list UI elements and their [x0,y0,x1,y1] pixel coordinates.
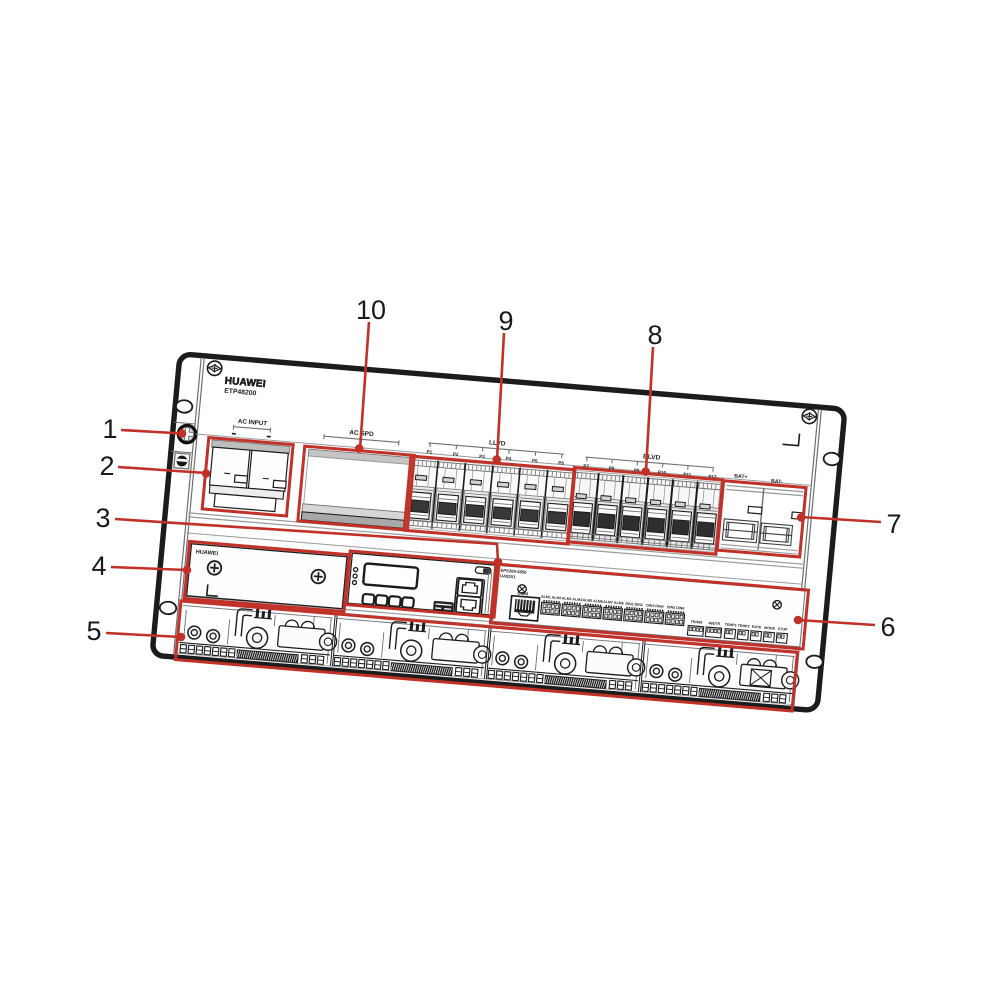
svg-text:2: 2 [99,451,114,481]
svg-text:P2: P2 [453,452,460,457]
svg-text:P3: P3 [479,454,486,459]
svg-text:STOP: STOP [778,627,789,632]
svg-text:P5: P5 [532,458,539,463]
svg-text:P6: P6 [558,460,565,465]
svg-text:RATE: RATE [752,625,762,630]
svg-text:5: 5 [86,616,101,646]
svg-text:6: 6 [880,612,895,642]
svg-text:9: 9 [498,306,513,336]
svg-text:10: 10 [356,295,386,325]
svg-text:7: 7 [886,509,901,539]
svg-text:BAT+: BAT+ [734,473,748,480]
svg-text:P4: P4 [505,456,512,461]
svg-text:P1: P1 [426,449,433,454]
svg-text:1: 1 [102,414,117,444]
svg-text:3: 3 [95,503,110,533]
svg-text:8: 8 [647,320,662,350]
svg-text:4: 4 [91,551,106,581]
